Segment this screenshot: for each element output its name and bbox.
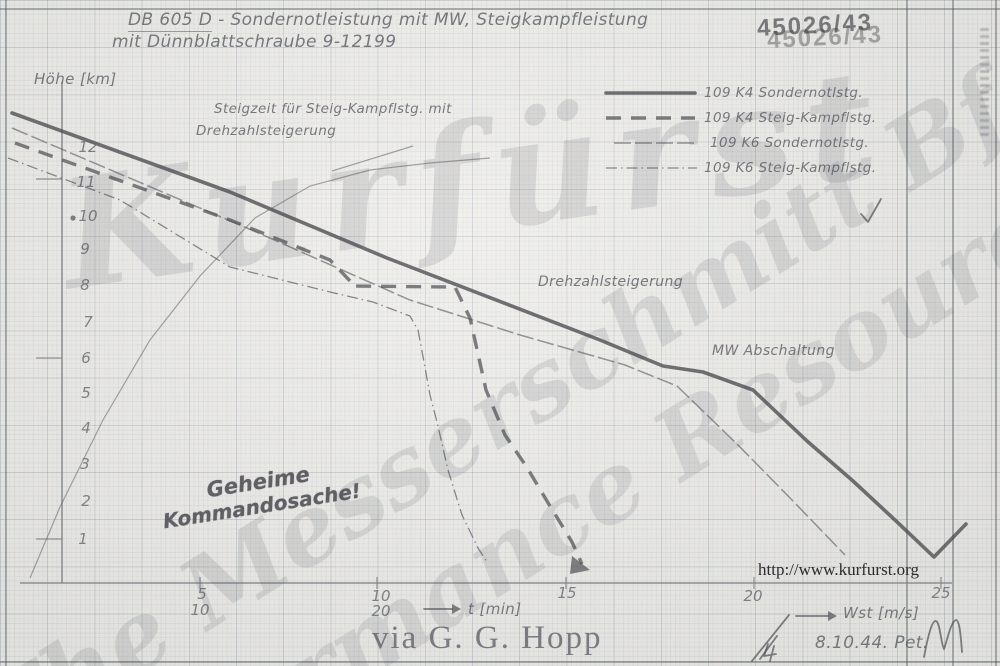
annotation-steigzeit-line1: Steigzeit für Steig-Kampflstg. mit — [214, 101, 452, 117]
wst-tick-25: 25 — [931, 584, 950, 602]
y-tick-7: 7 — [83, 313, 93, 331]
y-tick-4: 4 — [81, 419, 91, 437]
chart-title-line1: DB 605 D - Sondernotleistung mit MW, Ste… — [128, 10, 648, 30]
annotation-mw-abschaltung: MW Abschaltung — [712, 343, 835, 359]
y-tick-2: 2 — [81, 492, 91, 510]
wst-axis-label: Wst [m/s] — [843, 604, 919, 622]
y-tick-10: 10 — [78, 207, 97, 225]
wst-tick-15: 15 — [557, 584, 576, 602]
watermark-url: http://www.kurfurst.org — [758, 560, 919, 580]
y-axis-label: Höhe [km] — [34, 70, 117, 88]
t-tick-20: 20 — [371, 602, 390, 620]
annotation-steigzeit-line2: Drehzahlsteigerung — [196, 123, 336, 139]
y-tick-8: 8 — [80, 276, 90, 294]
title-rest: - Sondernotleistung mit MW, Steigkampfle… — [212, 10, 648, 30]
y-tick-5: 5 — [81, 384, 91, 402]
legend-label-k4-sondernot: 109 K4 Sondernotlstg. — [704, 85, 863, 101]
y-tick-1: 1 — [78, 530, 88, 548]
engine-designation: DB 605 D — [128, 10, 212, 32]
wst-tick-20: 20 — [743, 587, 762, 605]
legend-label-k6-sondernot: 109 K6 Sondernotlstg. — [710, 135, 869, 151]
handwritten-date-signature: 8.10.44. Pet. — [815, 633, 929, 653]
y-tick-12: 12 — [78, 138, 97, 156]
credit-text: via G. G. Hopp — [372, 620, 603, 657]
chart-title-line2: mit Dünnblattschraube 9-12199 — [112, 32, 396, 52]
y-tick-11: 11 — [76, 173, 95, 191]
paper-brand-vertical-mark — [980, 28, 989, 136]
annotation-drehzahlsteigerung: Drehzahlsteigerung — [538, 274, 683, 290]
t-tick-10: 10 — [190, 601, 209, 619]
legend-label-k6-steigkampf: 109 K6 Steig-Kampflstg. — [704, 160, 876, 176]
scanned-performance-chart-page: DB 605 D - Sondernotleistung mit MW, Ste… — [0, 0, 1000, 666]
t-axis-label: t [min] — [468, 600, 521, 618]
legend-label-k4-steigkampf: 109 K4 Steig-Kampflstg. — [704, 110, 876, 126]
y-tick-3: 3 — [80, 455, 90, 473]
y-tick-9: 9 — [80, 240, 90, 258]
y-tick-6: 6 — [81, 349, 91, 367]
